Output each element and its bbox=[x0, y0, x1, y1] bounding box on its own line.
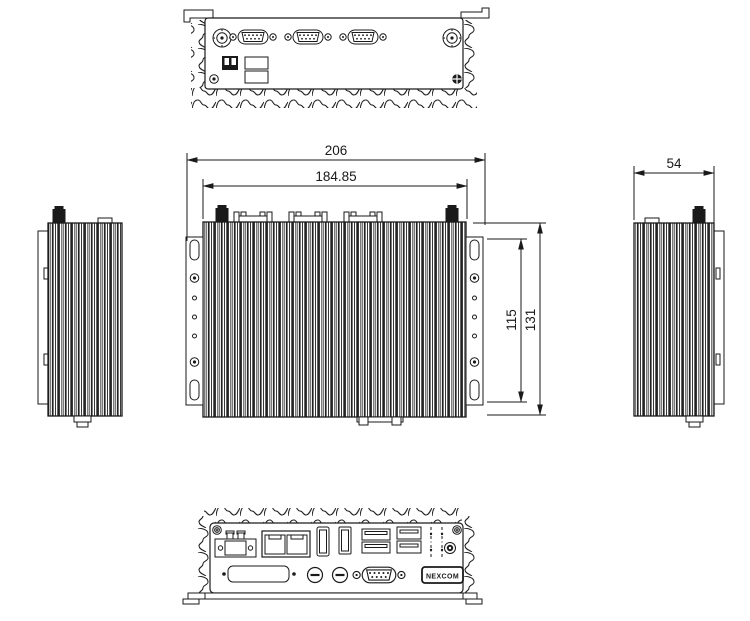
dim-mount-height: 115 bbox=[487, 239, 527, 402]
dim-mount-height-label: 115 bbox=[504, 309, 519, 331]
dim-inner-width-label: 184.85 bbox=[315, 169, 356, 184]
antenna-connector-left bbox=[213, 29, 231, 47]
dip-switch bbox=[222, 56, 238, 70]
hdmi-port bbox=[317, 527, 329, 556]
mounting-plate-right bbox=[466, 237, 483, 405]
connector-top-1 bbox=[234, 212, 272, 222]
panel-screw-left bbox=[213, 526, 222, 535]
technical-dimension-drawing: NEXCOM 206 184.85 54 bbox=[0, 0, 750, 621]
power-button bbox=[308, 568, 323, 583]
antenna-knob-left bbox=[216, 205, 229, 223]
connector-top-2 bbox=[289, 212, 327, 222]
dim-overall-width-label: 206 bbox=[325, 143, 348, 158]
right-side-view bbox=[634, 206, 724, 427]
rear-panel-face bbox=[205, 18, 463, 89]
mounting-ear-right bbox=[461, 8, 489, 18]
connector-top-3 bbox=[344, 212, 382, 222]
side-bracket-right bbox=[714, 231, 724, 404]
antenna-knob bbox=[53, 206, 66, 224]
antenna-connector-right bbox=[443, 29, 461, 47]
finned-side-body bbox=[634, 223, 714, 416]
bottom-foot bbox=[686, 416, 703, 427]
mounting-foot-left bbox=[183, 593, 205, 604]
reset-button bbox=[333, 568, 348, 583]
antenna-knob-right bbox=[446, 205, 459, 223]
side-bracket-left bbox=[38, 231, 48, 404]
heatsink-edge-left bbox=[191, 20, 206, 90]
front-view bbox=[186, 205, 483, 425]
dim-overall-height-label: 131 bbox=[523, 309, 538, 332]
heatsink-edge-left bbox=[196, 516, 211, 596]
logo-badge: NEXCOM bbox=[422, 567, 463, 583]
audio-jack bbox=[445, 543, 456, 554]
mounting-foot-right bbox=[463, 593, 482, 604]
left-side-view bbox=[38, 206, 122, 427]
panel-screw-right bbox=[453, 526, 462, 535]
expansion-slot-cover-2 bbox=[245, 71, 268, 83]
mounting-plate-left bbox=[186, 237, 203, 405]
bottom-tabs bbox=[357, 417, 403, 425]
drawing-canvas: NEXCOM 206 184.85 54 bbox=[0, 0, 750, 621]
dim-depth-label: 54 bbox=[666, 156, 682, 171]
expansion-slot-cover-1 bbox=[245, 57, 268, 69]
heatsink-edge-right bbox=[462, 516, 477, 596]
front-panel-view: NEXCOM bbox=[183, 508, 482, 604]
rear-screw-right bbox=[452, 74, 462, 84]
rear-panel-view bbox=[184, 8, 489, 108]
rear-screw-left bbox=[210, 75, 219, 84]
logo-text: NEXCOM bbox=[426, 574, 459, 581]
heatsink-edge-right bbox=[462, 20, 477, 90]
heatsink-edge-bottom bbox=[191, 88, 477, 108]
base-plate bbox=[204, 593, 465, 599]
dvi-port bbox=[222, 566, 296, 582]
antenna-knob bbox=[693, 206, 706, 224]
bottom-foot bbox=[74, 416, 91, 427]
finned-body bbox=[203, 222, 466, 417]
finned-side-body bbox=[48, 223, 122, 416]
displayport bbox=[339, 527, 351, 554]
dual-lan-ports bbox=[262, 531, 310, 557]
